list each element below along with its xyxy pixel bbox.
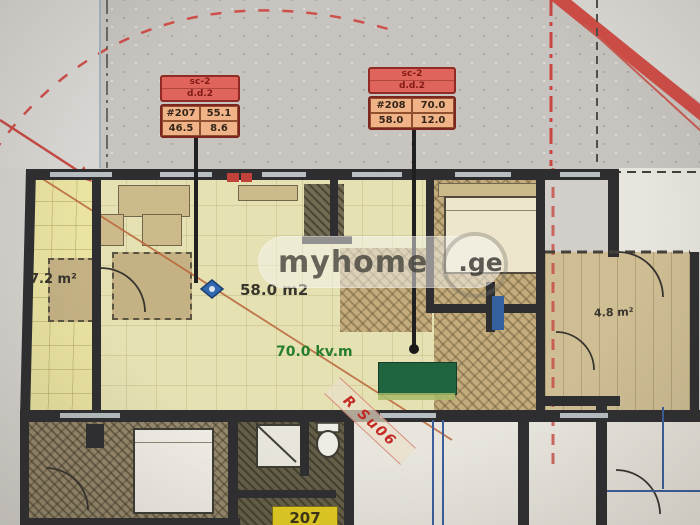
unit-208-header-line1: sc-2 bbox=[370, 69, 454, 81]
unit-207-header-line1: sc-2 bbox=[162, 77, 238, 89]
watermark: myhome .ge bbox=[258, 236, 502, 288]
lower-unit-tag: 207 bbox=[272, 506, 338, 525]
unit-207-living-area: 46.5 bbox=[162, 121, 200, 136]
red-leader-line bbox=[0, 120, 86, 176]
unit-208-number: #208 bbox=[370, 98, 412, 113]
green-marker-block bbox=[378, 362, 457, 395]
unit-207-header-line2: d.d.2 bbox=[162, 89, 238, 100]
unit-207-values: #207 55.1 46.5 8.6 bbox=[160, 104, 240, 138]
area-label-total: 70.0 kv.m bbox=[276, 344, 353, 360]
unit-207-number: #207 bbox=[162, 106, 200, 121]
unit-208-living-area: 58.0 bbox=[370, 113, 412, 128]
door-arcs bbox=[46, 252, 663, 514]
area-label-left-balcony: 7.2 m² bbox=[30, 272, 77, 287]
leader-end-dot bbox=[409, 344, 419, 354]
unit-208-values: #208 70.0 58.0 12.0 bbox=[368, 96, 456, 130]
unit-207-total-area: 55.1 bbox=[200, 106, 238, 121]
stove-marker bbox=[241, 173, 252, 182]
walls bbox=[20, 169, 700, 525]
unit-208-header-line2: d.d.2 bbox=[370, 81, 454, 92]
unit-208-balcony-area: 12.0 bbox=[412, 113, 454, 128]
unit-207-balcony-area: 8.6 bbox=[200, 121, 238, 136]
windows bbox=[50, 172, 608, 418]
unit-label-208: sc-2 d.d.2 #208 70.0 58.0 12.0 bbox=[368, 67, 456, 130]
shower-diagonal bbox=[258, 426, 296, 462]
unit-label-207: sc-2 d.d.2 #207 55.1 46.5 8.6 bbox=[160, 75, 240, 138]
diamond-marker-center bbox=[209, 286, 215, 292]
unit-207-header: sc-2 d.d.2 bbox=[160, 75, 240, 102]
unit-208-total-area: 70.0 bbox=[412, 98, 454, 113]
unit-208-header: sc-2 d.d.2 bbox=[368, 67, 456, 94]
stove-marker bbox=[227, 173, 239, 182]
floor-plan-photo: 7.2 m² 58.0 m2 70.0 kv.m 4.8 m² R Su06 2… bbox=[0, 0, 700, 525]
watermark-brand: myhome bbox=[278, 245, 428, 280]
toilet-bowl bbox=[317, 431, 339, 457]
green-marker-strip bbox=[378, 393, 455, 400]
watermark-ring-icon bbox=[442, 232, 508, 298]
blue-window-marker bbox=[492, 296, 504, 330]
area-label-right-balcony: 4.8 m² bbox=[594, 305, 634, 319]
